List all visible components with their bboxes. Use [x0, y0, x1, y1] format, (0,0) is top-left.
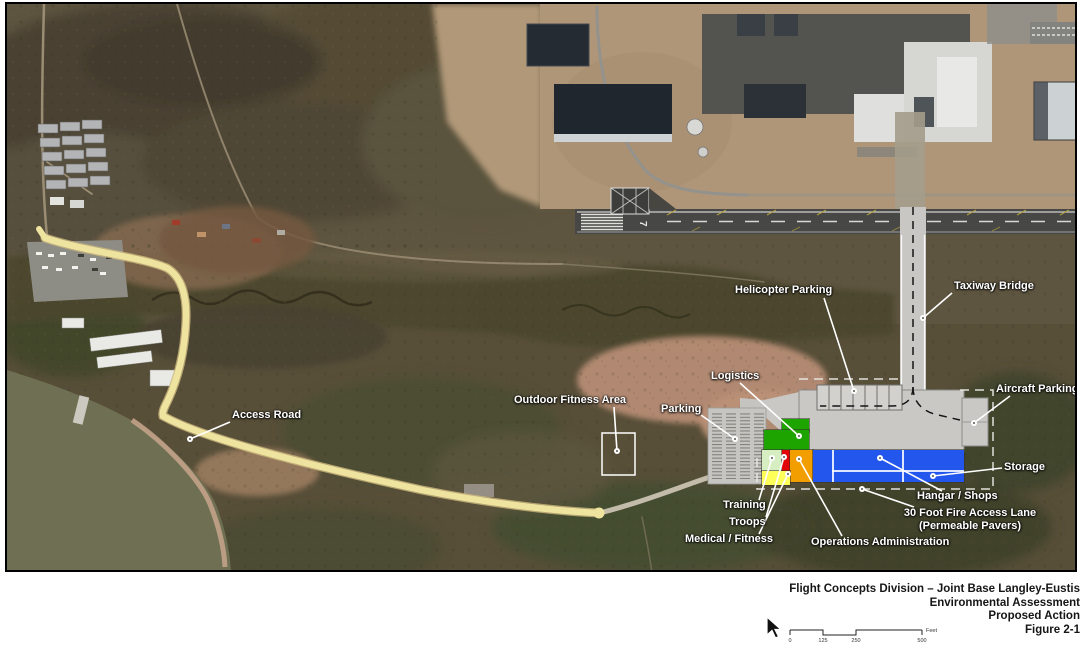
building-operations-administration	[790, 450, 813, 482]
hangar-divider	[832, 450, 834, 482]
label-parking: Parking	[661, 403, 701, 416]
label-taxiway-bridge: Taxiway Bridge	[954, 280, 1034, 293]
aerial-map-figure: 7	[5, 2, 1077, 572]
title-line-project: Flight Concepts Division – Joint Base La…	[660, 583, 1080, 597]
label-helicopter-parking: Helicopter Parking	[735, 284, 832, 297]
hangar-divider	[902, 450, 904, 482]
building-training	[762, 450, 782, 471]
scale-unit: Feet	[926, 628, 937, 634]
label-fire-access-lane-line2: (Permeable Pavers)	[895, 520, 1045, 533]
scale-tick-0: 0	[788, 638, 791, 644]
label-storage: Storage	[1004, 461, 1045, 474]
label-aircraft-parking: Aircraft Parking	[996, 383, 1077, 396]
mouse-cursor-icon	[764, 616, 786, 642]
label-training: Training	[723, 499, 766, 512]
label-logistics: Logistics	[711, 370, 759, 383]
scale-tick-500: 500	[917, 638, 926, 644]
label-hangar-shops: Hangar / Shops	[917, 490, 998, 503]
building-medical-fitness	[762, 471, 790, 485]
title-line-document: Environmental Assessment	[660, 597, 1080, 611]
hangar-divider	[832, 470, 964, 472]
label-operations-administration: Operations Administration	[811, 536, 949, 549]
building-logistics	[764, 430, 809, 451]
building-troops	[782, 450, 790, 471]
aerial-imagery: 7	[7, 4, 1077, 572]
label-fire-access-lane-line1: 30 Foot Fire Access Lane	[895, 507, 1045, 520]
title-line-alternative: Proposed Action	[660, 610, 1080, 624]
label-access-road: Access Road	[232, 409, 301, 422]
label-troops: Troops	[729, 516, 766, 529]
scale-tick-125: 125	[818, 638, 827, 644]
runway-number: 7	[637, 221, 648, 227]
label-outdoor-fitness-area: Outdoor Fitness Area	[514, 394, 626, 407]
building-hangar-storage	[813, 450, 964, 482]
scale-bar: 0 125 250 500 Feet	[788, 624, 948, 648]
label-fire-access-lane: 30 Foot Fire Access Lane (Permeable Pave…	[895, 507, 1045, 533]
figure-page: { "map": { "labels": { "helicopter_parki…	[0, 0, 1085, 650]
label-medical-fitness: Medical / Fitness	[685, 533, 773, 546]
scale-tick-250: 250	[851, 638, 860, 644]
